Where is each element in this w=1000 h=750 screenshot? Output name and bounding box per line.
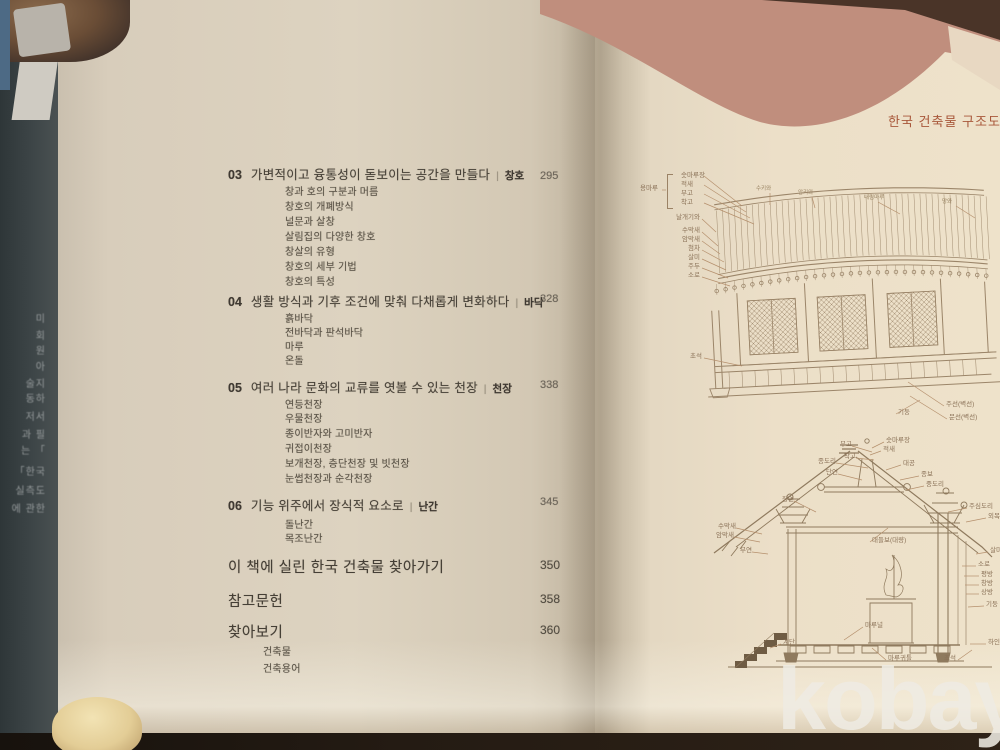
diagram-label: 부연 (706, 548, 752, 555)
diagram-label: 주두 (654, 264, 700, 271)
diagram-label: 착고 (681, 200, 693, 207)
diagram-label: 마루널 (865, 623, 883, 630)
diagram-label: 적새 (883, 447, 895, 454)
diagram-label: 문선(벽선) (949, 415, 977, 422)
diagram-label: 소로 (978, 562, 990, 569)
diagram-label: 초석 (690, 354, 702, 361)
diagram-label: 수키와 (756, 187, 771, 193)
book-photo: 미회원아술지동하저서과 필는 「「한국실측도에 관한 03가변적이고 융통성이 … (0, 0, 1000, 750)
diagram-label: 기둥 (898, 410, 910, 417)
kobay-watermark: kobay (777, 655, 1000, 743)
diagram-label: 창방 (981, 581, 993, 588)
diagram-label: 단연 (792, 470, 838, 477)
diagram-label: 주선(벽선) (946, 402, 974, 409)
diagram-label: 암막새 (688, 533, 734, 540)
diagram-label: 외목도리 (988, 514, 1000, 521)
diagram-label: 암키와 (798, 191, 813, 197)
diagram-label: 중도리 (926, 482, 944, 489)
diagram-label: 적새 (681, 182, 693, 189)
diagram-label: 부고 (681, 191, 693, 198)
diagram-label: 살미 (654, 255, 700, 262)
diagram-label: 수막새 (690, 524, 736, 531)
diagram-label: 주심도리 (969, 504, 993, 511)
diagram-label: 날개기와 (654, 215, 700, 222)
diagram-label: 상방 (981, 590, 993, 597)
diagram-label: 내림마루 (864, 196, 884, 202)
diagram-label: 평방 (981, 572, 993, 579)
diagram-label: 망와 (942, 200, 952, 206)
ridge-bracket (667, 174, 673, 209)
diagram-label: 종도리 (790, 459, 836, 466)
diagram-label: 숫마루장 (886, 438, 910, 445)
diagram-label: 종보 (921, 472, 933, 479)
diagram-label: 살미 (990, 548, 1000, 555)
diagram-label: 부고 (806, 442, 852, 449)
diagram-label: 장연 (748, 497, 794, 504)
diagram-label: 소로 (654, 273, 700, 280)
diagram-label: 숫마루장 (681, 173, 705, 180)
holding-thumb (52, 697, 142, 750)
diagram-label: 대공 (903, 461, 915, 468)
leader-lines (0, 0, 1000, 750)
diagram-label: 암막새 (654, 237, 700, 244)
diagram-label: 용마루 (640, 186, 658, 193)
diagram-label: 하인방 (988, 640, 1000, 647)
diagram-label: 수막새 (654, 228, 700, 235)
diagram-label: 계단 (783, 640, 795, 647)
diagram-label: 첨차 (654, 246, 700, 253)
diagram-label: 기둥 (986, 602, 998, 609)
diagram-label: 대들보(대량) (872, 538, 906, 545)
